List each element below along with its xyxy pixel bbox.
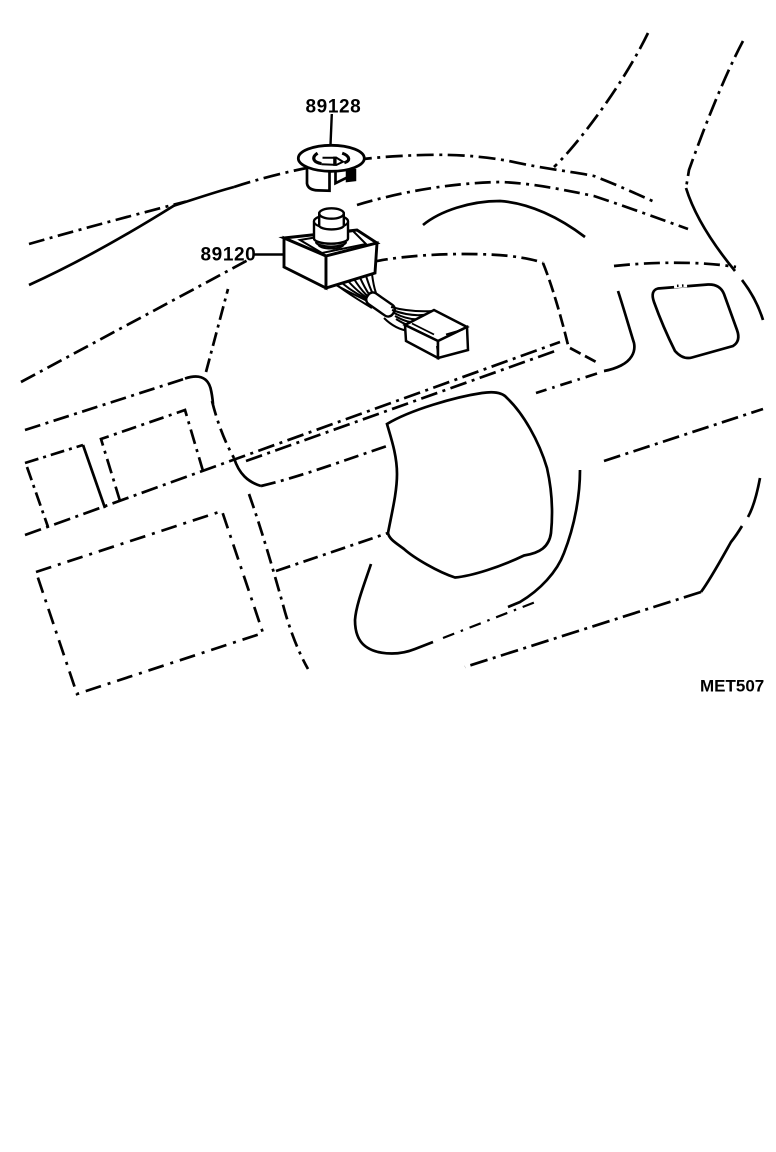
svg-text:89128: 89128: [306, 97, 362, 118]
svg-text:MET507: MET507: [700, 677, 764, 696]
svg-text:89120: 89120: [201, 245, 257, 266]
